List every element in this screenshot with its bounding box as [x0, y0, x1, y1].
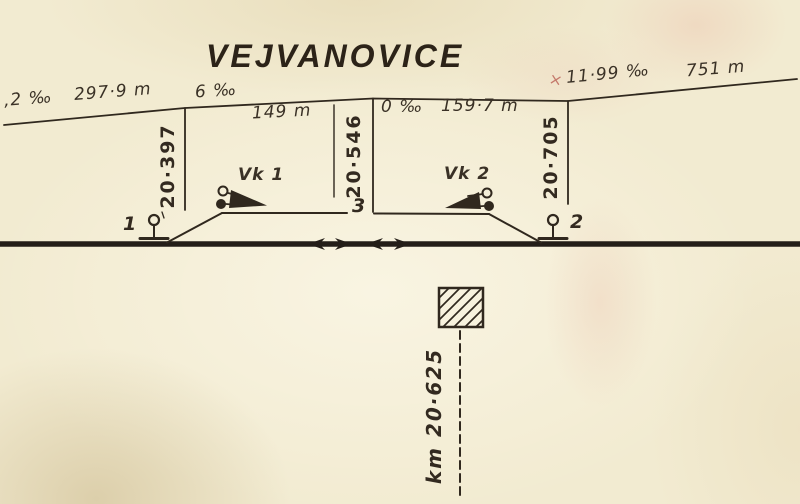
station-axis-km-label: km 20·625	[424, 341, 450, 491]
scanned-track-plan: VEJVANOVICE ,2 ‰ 297·9 m 6 ‰ 149 m 0 ‰ 1…	[0, 0, 800, 504]
signal-1-icon	[140, 212, 168, 239]
km-post-2-label: 20·546	[345, 111, 369, 201]
length-seg4-label: 751 m	[685, 59, 746, 81]
derail-vk2-label: Vk 2	[444, 166, 490, 183]
grade-seg2-label: 6 ‰	[194, 82, 237, 102]
km-post-1-label: 20·397	[159, 121, 183, 211]
grade-seg1-label: ,2 ‰	[3, 89, 53, 110]
siding-track-label: 3	[352, 197, 365, 216]
grade-seg3-label: 0 ‰	[381, 99, 423, 116]
km-post-3-label: 20·705	[542, 112, 566, 202]
track-plan-linework	[0, 0, 800, 504]
station-title: VEJVANOVICE	[206, 40, 464, 72]
signal-2-label: 2	[570, 213, 583, 232]
signal-2-icon	[539, 215, 567, 239]
derail-vk1-label: Vk 1	[238, 167, 284, 184]
derail-vk1-icon	[216, 187, 267, 210]
derail-vk2-icon	[445, 189, 494, 212]
building-symbol	[439, 288, 483, 327]
signal-1-label: 1	[123, 215, 136, 234]
length-seg3-label: 159·7 m	[441, 98, 519, 115]
siding-track-line	[167, 213, 541, 243]
length-seg2-label: 149 m	[252, 102, 312, 122]
